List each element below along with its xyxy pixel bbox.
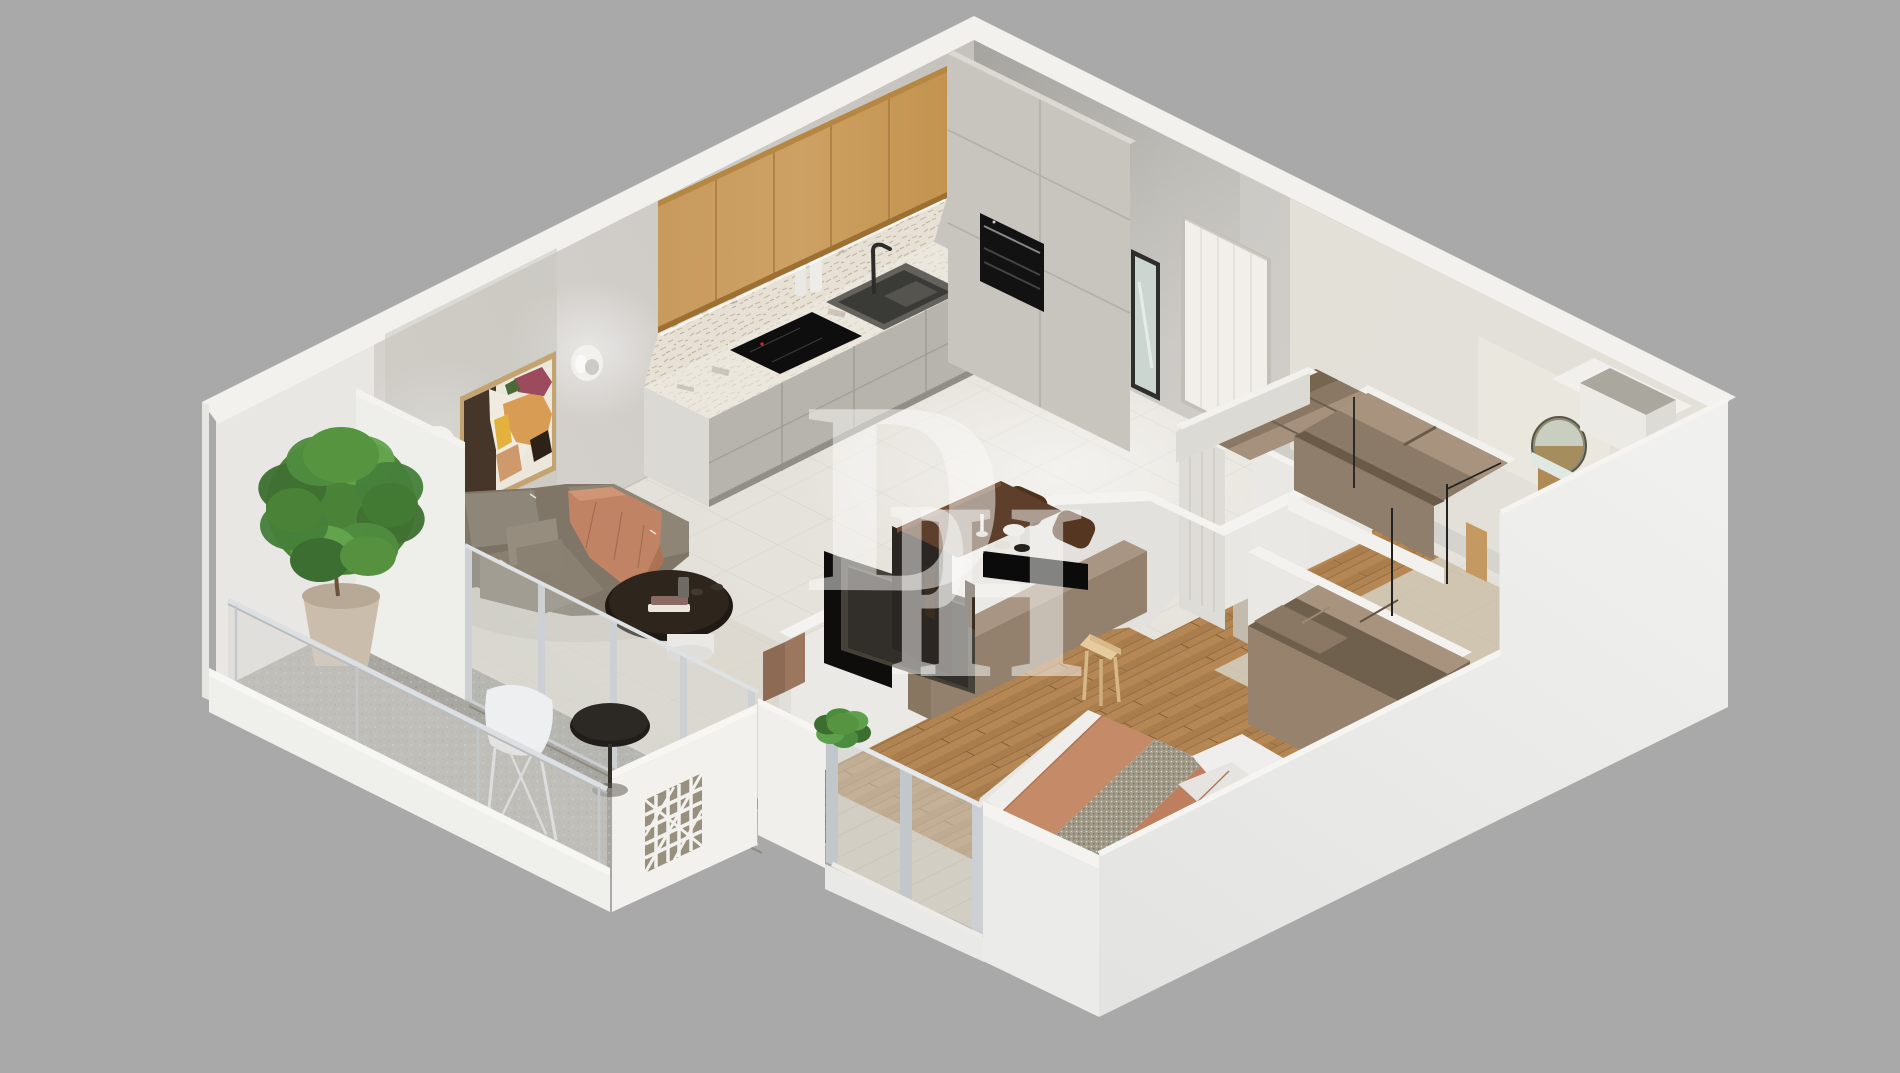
svg-text:H: H (917, 450, 1085, 731)
